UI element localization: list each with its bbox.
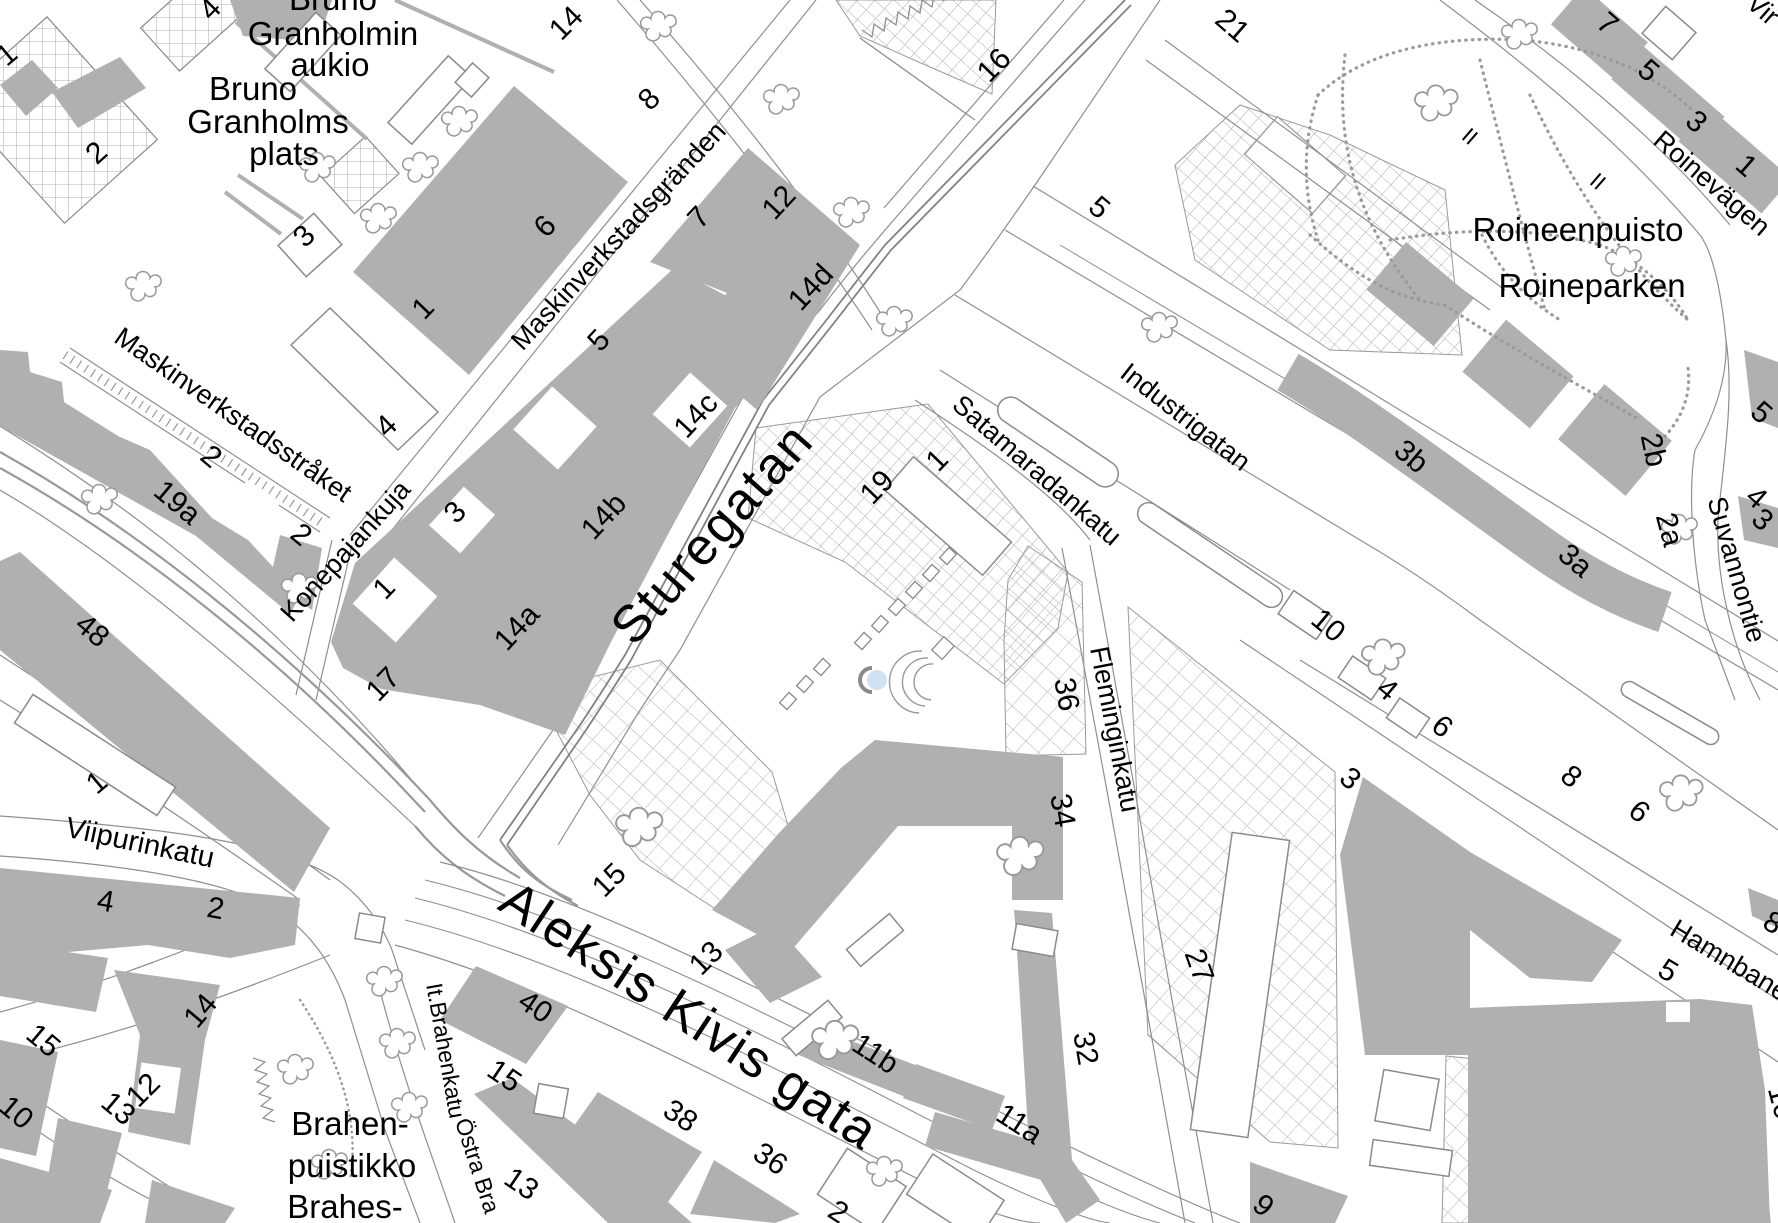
svg-text:Bruno: Bruno <box>209 70 297 107</box>
svg-text:Brahen-: Brahen- <box>291 1105 408 1142</box>
svg-text:34: 34 <box>1043 791 1081 830</box>
svg-text:Roineenpuisto: Roineenpuisto <box>1473 211 1684 248</box>
svg-text:aukio: aukio <box>291 46 370 83</box>
svg-text:32: 32 <box>1066 1029 1104 1068</box>
svg-text:plats: plats <box>249 135 319 172</box>
svg-text:36: 36 <box>1047 675 1085 714</box>
svg-text:puistikko: puistikko <box>288 1147 416 1184</box>
svg-text:Roineparken: Roineparken <box>1498 267 1685 304</box>
svg-text:2b: 2b <box>1634 430 1673 470</box>
svg-text:Brahes-: Brahes- <box>287 1188 403 1223</box>
